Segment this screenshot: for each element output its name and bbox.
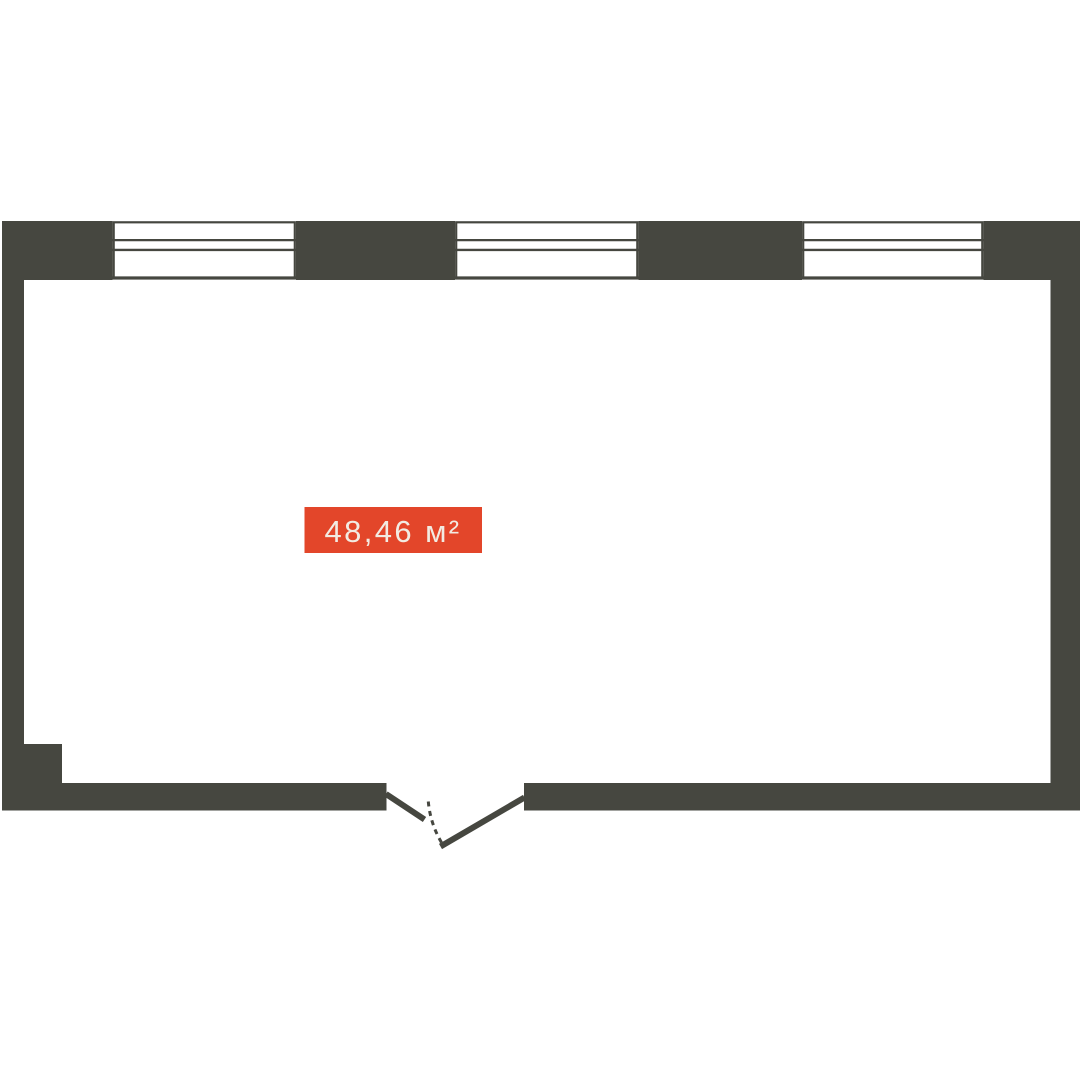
svg-text:48,46 м²: 48,46 м²: [324, 514, 461, 549]
